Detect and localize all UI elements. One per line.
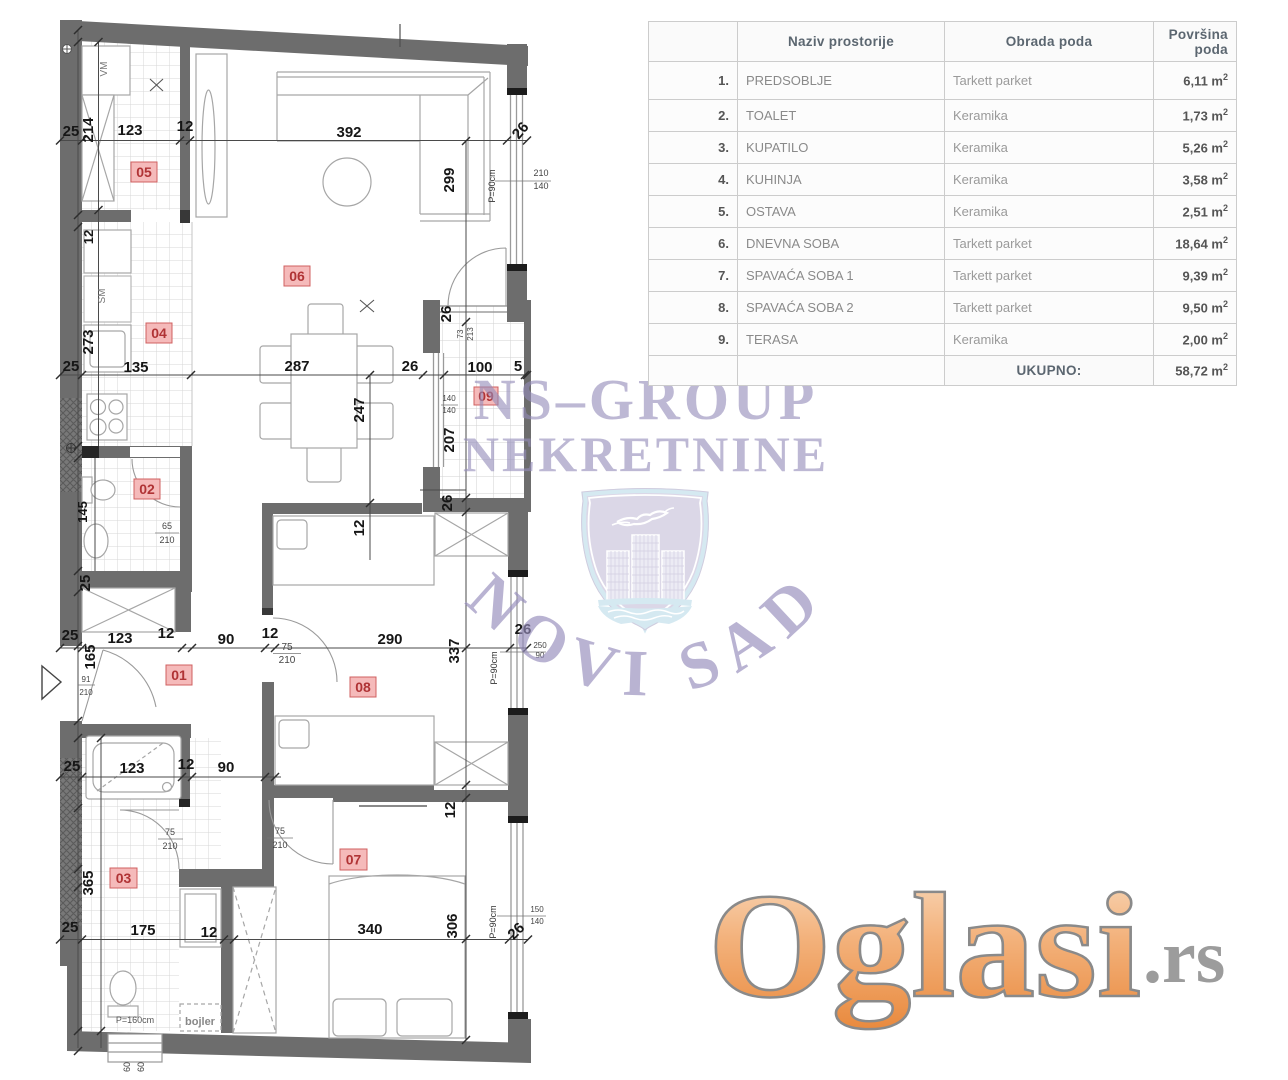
svg-text:25: 25: [63, 123, 80, 140]
svg-text:273: 273: [80, 329, 97, 354]
svg-text:12: 12: [262, 625, 279, 642]
svg-text:.rs: .rs: [1143, 915, 1225, 999]
svg-text:123: 123: [119, 760, 144, 777]
svg-text:210: 210: [533, 168, 548, 178]
svg-text:340: 340: [357, 921, 382, 938]
svg-text:213: 213: [466, 327, 475, 341]
svg-text:75: 75: [281, 642, 293, 653]
svg-text:91: 91: [82, 675, 91, 684]
svg-text:SM: SM: [97, 289, 108, 304]
svg-text:210: 210: [162, 841, 177, 851]
svg-text:12: 12: [178, 756, 195, 773]
svg-text:210: 210: [272, 840, 287, 850]
svg-text:306: 306: [444, 913, 461, 938]
svg-text:140: 140: [533, 181, 548, 191]
svg-text:73: 73: [456, 329, 465, 338]
svg-text:165: 165: [82, 644, 99, 669]
svg-text:06: 06: [289, 268, 305, 284]
svg-text:25: 25: [62, 627, 79, 644]
svg-text:123: 123: [107, 630, 132, 647]
svg-text:290: 290: [377, 631, 402, 648]
svg-text:90: 90: [218, 759, 235, 776]
svg-text:75: 75: [275, 826, 285, 836]
svg-text:123: 123: [117, 122, 142, 139]
svg-text:12: 12: [442, 802, 459, 819]
svg-text:12: 12: [81, 230, 96, 244]
svg-text:12: 12: [158, 625, 175, 642]
svg-text:25: 25: [62, 919, 79, 936]
svg-text:bojler: bojler: [185, 1016, 216, 1028]
svg-text:210: 210: [79, 688, 93, 697]
svg-text:12: 12: [351, 520, 368, 537]
svg-text:26: 26: [438, 306, 455, 323]
svg-text:140: 140: [530, 917, 544, 926]
svg-text:VM: VM: [99, 62, 110, 77]
svg-text:25: 25: [64, 758, 81, 775]
svg-text:60: 60: [136, 1062, 146, 1072]
svg-text:12: 12: [201, 924, 218, 941]
svg-text:07: 07: [346, 852, 362, 868]
svg-text:Oglasi: Oglasi: [708, 868, 1141, 1029]
svg-text:287: 287: [284, 358, 309, 375]
svg-text:392: 392: [336, 124, 361, 141]
svg-text:08: 08: [355, 679, 371, 695]
svg-text:365: 365: [80, 870, 97, 895]
svg-text:P=90cm: P=90cm: [487, 169, 497, 202]
svg-text:60: 60: [122, 1062, 132, 1072]
svg-text:P=90cm: P=90cm: [488, 905, 498, 938]
svg-text:04: 04: [151, 325, 167, 341]
svg-text:12: 12: [177, 118, 194, 135]
svg-text:175: 175: [130, 922, 155, 939]
svg-text:214: 214: [80, 117, 97, 143]
svg-text:03: 03: [116, 870, 132, 886]
svg-text:75: 75: [165, 827, 175, 837]
svg-text:NOVI SAD: NOVI SAD: [453, 556, 841, 710]
svg-text:26: 26: [439, 495, 456, 512]
svg-text:210: 210: [279, 655, 296, 666]
svg-text:26: 26: [402, 358, 419, 375]
svg-text:150: 150: [530, 905, 544, 914]
svg-text:02: 02: [139, 481, 155, 497]
svg-text:145: 145: [75, 501, 90, 523]
svg-text:135: 135: [123, 359, 148, 376]
svg-text:210: 210: [159, 535, 174, 545]
svg-text:65: 65: [162, 521, 172, 531]
svg-text:01: 01: [171, 667, 187, 683]
svg-text:299: 299: [441, 167, 458, 192]
svg-text:P=160cm: P=160cm: [116, 1015, 154, 1025]
svg-text:25: 25: [63, 358, 80, 375]
svg-text:05: 05: [136, 164, 152, 180]
svg-text:90: 90: [218, 631, 235, 648]
svg-text:25: 25: [77, 575, 94, 592]
